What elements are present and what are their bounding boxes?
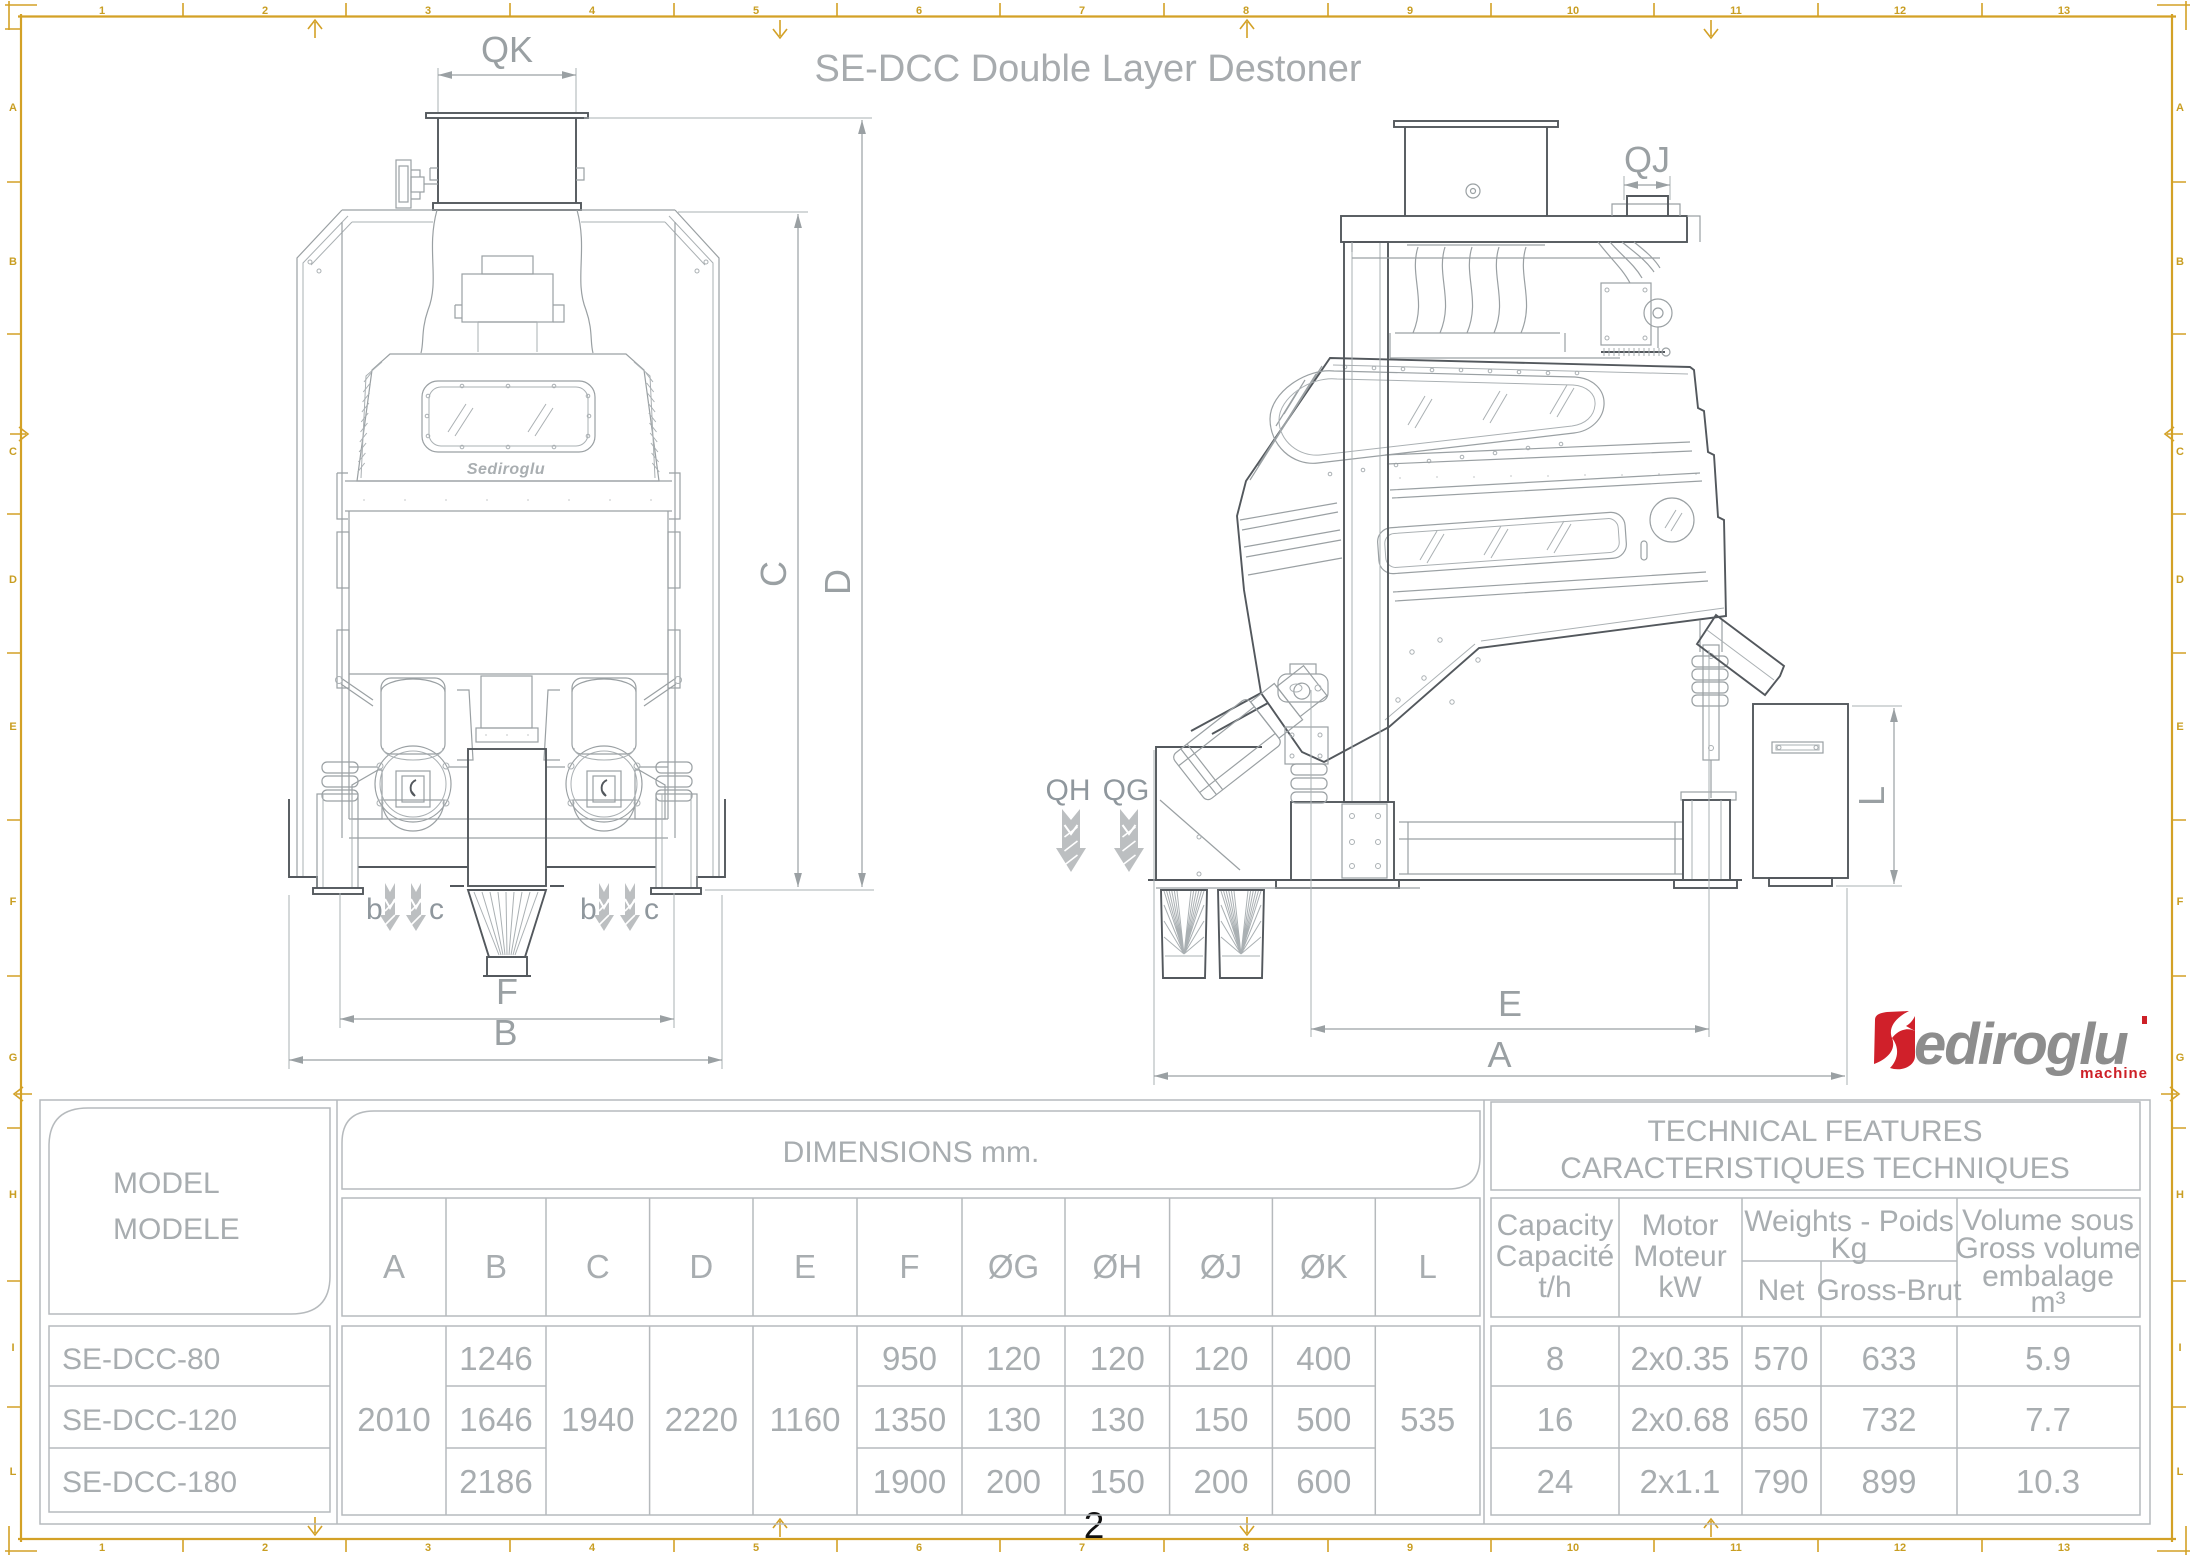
svg-text:600: 600 — [1296, 1463, 1351, 1500]
svg-text:650: 650 — [1753, 1401, 1808, 1438]
svg-text:E: E — [1498, 983, 1522, 1024]
svg-text:Capacity: Capacity — [1497, 1209, 1614, 1242]
svg-text:6: 6 — [916, 5, 922, 17]
svg-text:SE-DCC-120: SE-DCC-120 — [62, 1404, 237, 1437]
svg-text:120: 120 — [1090, 1340, 1145, 1377]
svg-text:570: 570 — [1753, 1340, 1808, 1377]
svg-text:C: C — [586, 1248, 610, 1285]
svg-text:A: A — [2176, 102, 2184, 114]
svg-text:L: L — [10, 1466, 17, 1478]
svg-text:b: b — [580, 893, 597, 926]
svg-text:C: C — [9, 446, 17, 458]
svg-text:13: 13 — [2058, 5, 2070, 17]
svg-text:1350: 1350 — [873, 1401, 946, 1438]
svg-text:400: 400 — [1296, 1340, 1351, 1377]
svg-text:1940: 1940 — [561, 1401, 634, 1438]
svg-text:12: 12 — [1894, 1542, 1906, 1554]
svg-text:790: 790 — [1753, 1463, 1808, 1500]
svg-text:B: B — [485, 1248, 507, 1285]
svg-text:c: c — [429, 893, 444, 926]
svg-text:MODEL: MODEL — [113, 1167, 220, 1200]
svg-text:B: B — [9, 256, 17, 268]
svg-text:QJ: QJ — [1624, 139, 1670, 180]
svg-text:8: 8 — [1243, 1542, 1249, 1554]
svg-text:12: 12 — [1894, 5, 1906, 17]
svg-text:120: 120 — [1193, 1340, 1248, 1377]
svg-text:m³: m³ — [2031, 1286, 2066, 1319]
svg-text:Kg: Kg — [1831, 1232, 1868, 1265]
svg-text:2186: 2186 — [459, 1463, 532, 1500]
svg-text:E: E — [9, 721, 16, 733]
svg-text:130: 130 — [986, 1401, 1041, 1438]
svg-text:I: I — [11, 1342, 14, 1354]
svg-text:Moteur: Moteur — [1633, 1240, 1726, 1273]
svg-text:Motor: Motor — [1642, 1209, 1719, 1242]
svg-text:A: A — [1487, 1034, 1511, 1075]
svg-text:2x0.68: 2x0.68 — [1630, 1401, 1729, 1438]
svg-text:1900: 1900 — [873, 1463, 946, 1500]
svg-text:QK: QK — [481, 29, 533, 70]
svg-text:E: E — [794, 1248, 816, 1285]
svg-text:ØK: ØK — [1300, 1248, 1348, 1285]
svg-text:Gross-Brut: Gross-Brut — [1816, 1274, 1962, 1307]
svg-text:16: 16 — [1537, 1401, 1574, 1438]
svg-text:Capacité: Capacité — [1496, 1240, 1614, 1273]
svg-text:B: B — [493, 1012, 517, 1053]
svg-text:G: G — [2176, 1052, 2185, 1064]
svg-text:130: 130 — [1090, 1401, 1145, 1438]
svg-text:c: c — [644, 893, 659, 926]
svg-text:899: 899 — [1861, 1463, 1916, 1500]
svg-text:B: B — [2176, 256, 2184, 268]
svg-text:ØJ: ØJ — [1200, 1248, 1242, 1285]
svg-text:D: D — [689, 1248, 713, 1285]
svg-text:1646: 1646 — [459, 1401, 532, 1438]
svg-text:8: 8 — [1546, 1340, 1564, 1377]
svg-text:Sediroglu: Sediroglu — [467, 461, 545, 478]
svg-text:1246: 1246 — [459, 1340, 532, 1377]
svg-text:A: A — [9, 102, 17, 114]
svg-text:SE-DCC Double Layer Destoner: SE-DCC Double Layer Destoner — [814, 48, 1361, 90]
svg-text:TECHNICAL FEATURES: TECHNICAL FEATURES — [1647, 1115, 1982, 1148]
svg-text:D: D — [2176, 574, 2184, 586]
svg-text:633: 633 — [1861, 1340, 1916, 1377]
svg-text:b: b — [366, 893, 383, 926]
svg-text:535: 535 — [1400, 1401, 1455, 1438]
svg-text:24: 24 — [1537, 1463, 1574, 1500]
svg-text:F: F — [10, 896, 17, 908]
svg-text:G: G — [9, 1052, 18, 1064]
svg-text:7.7: 7.7 — [2025, 1401, 2071, 1438]
svg-text:DIMENSIONS mm.: DIMENSIONS mm. — [783, 1136, 1040, 1169]
svg-text:A: A — [383, 1248, 405, 1285]
svg-text:2: 2 — [1084, 1505, 1105, 1546]
svg-text:11: 11 — [1730, 1542, 1742, 1554]
svg-text:F: F — [2177, 896, 2184, 908]
svg-text:6: 6 — [916, 1542, 922, 1554]
svg-text:500: 500 — [1296, 1401, 1351, 1438]
svg-text:9: 9 — [1407, 1542, 1413, 1554]
svg-text:150: 150 — [1193, 1401, 1248, 1438]
svg-text:machine: machine — [2080, 1065, 2148, 1082]
svg-text:10.3: 10.3 — [2016, 1463, 2080, 1500]
svg-text:L: L — [1851, 786, 1892, 806]
svg-text:MODELE: MODELE — [113, 1213, 240, 1246]
svg-text:8: 8 — [1243, 5, 1249, 17]
svg-text:D: D — [817, 569, 858, 595]
svg-text:E: E — [2176, 721, 2183, 733]
svg-text:9: 9 — [1407, 5, 1413, 17]
svg-text:2x0.35: 2x0.35 — [1630, 1340, 1729, 1377]
svg-text:5.9: 5.9 — [2025, 1340, 2071, 1377]
svg-text:3: 3 — [425, 1542, 431, 1554]
svg-text:F: F — [496, 971, 518, 1012]
svg-text:C: C — [2176, 446, 2184, 458]
svg-text:2: 2 — [262, 5, 268, 17]
svg-text:4: 4 — [589, 1542, 596, 1554]
svg-text:H: H — [2176, 1189, 2184, 1201]
svg-text:150: 150 — [1090, 1463, 1145, 1500]
svg-text:200: 200 — [986, 1463, 1041, 1500]
svg-text:200: 200 — [1193, 1463, 1248, 1500]
svg-text:3: 3 — [425, 5, 431, 17]
svg-text:4: 4 — [589, 5, 596, 17]
svg-text:1: 1 — [99, 1542, 105, 1554]
svg-text:D: D — [9, 574, 17, 586]
svg-text:5: 5 — [753, 5, 759, 17]
svg-text:2010: 2010 — [357, 1401, 430, 1438]
svg-text:10: 10 — [1567, 1542, 1579, 1554]
svg-text:ØH: ØH — [1093, 1248, 1143, 1285]
svg-text:CARACTERISTIQUES TECHNIQUES: CARACTERISTIQUES TECHNIQUES — [1560, 1152, 2070, 1185]
svg-text:120: 120 — [986, 1340, 1041, 1377]
svg-text:11: 11 — [1730, 5, 1742, 17]
svg-text:SE-DCC-80: SE-DCC-80 — [62, 1343, 220, 1376]
svg-text:2: 2 — [262, 1542, 268, 1554]
svg-text:5: 5 — [753, 1542, 759, 1554]
svg-text:2220: 2220 — [665, 1401, 738, 1438]
svg-text:Net: Net — [1758, 1274, 1805, 1307]
svg-text:ØG: ØG — [988, 1248, 1039, 1285]
svg-text:F: F — [899, 1248, 919, 1285]
svg-text:950: 950 — [882, 1340, 937, 1377]
svg-text:L: L — [1419, 1248, 1437, 1285]
svg-text:732: 732 — [1861, 1401, 1916, 1438]
svg-text:10: 10 — [1567, 5, 1579, 17]
svg-text:2x1.1: 2x1.1 — [1640, 1463, 1721, 1500]
svg-text:1160: 1160 — [770, 1401, 841, 1438]
svg-text:t/h: t/h — [1538, 1271, 1571, 1304]
svg-text:7: 7 — [1079, 5, 1085, 17]
svg-text:13: 13 — [2058, 1542, 2070, 1554]
svg-text:QH: QH — [1046, 774, 1091, 807]
svg-text:1: 1 — [99, 5, 105, 17]
svg-text:SE-DCC-180: SE-DCC-180 — [62, 1466, 237, 1499]
svg-text:C: C — [753, 561, 794, 587]
svg-text:QG: QG — [1103, 774, 1150, 807]
svg-text:kW: kW — [1658, 1271, 1702, 1304]
svg-text:H: H — [9, 1189, 17, 1201]
svg-text:L: L — [2177, 1466, 2184, 1478]
svg-text:I: I — [2178, 1342, 2181, 1354]
